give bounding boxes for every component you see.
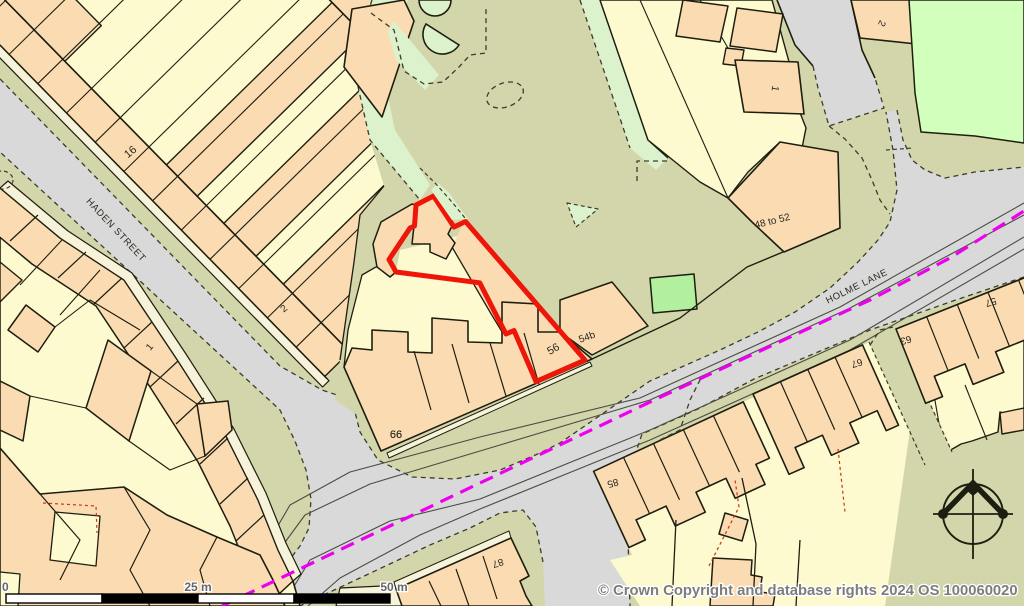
- svg-text:25 m: 25 m: [184, 580, 211, 594]
- svg-text:50 m: 50 m: [380, 580, 407, 594]
- svg-text:0: 0: [2, 580, 9, 594]
- svg-text:© Crown Copyright and database: © Crown Copyright and database rights 20…: [598, 583, 1018, 599]
- svg-text:66: 66: [390, 429, 402, 441]
